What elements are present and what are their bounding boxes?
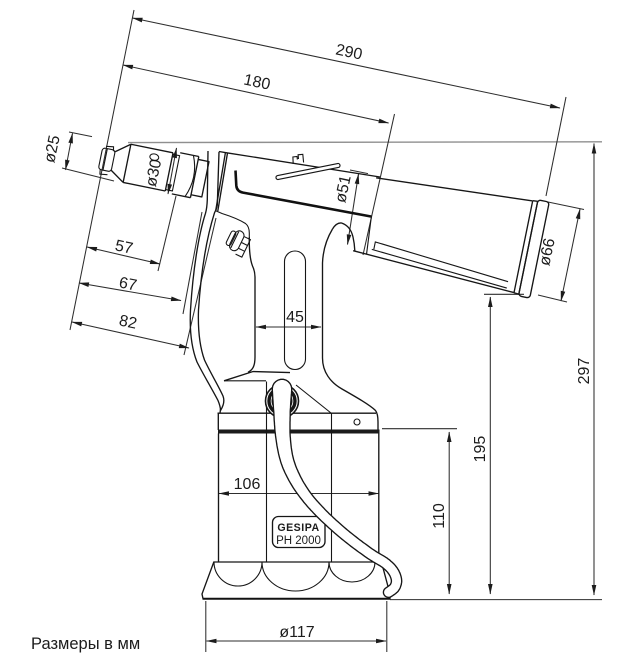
- svg-text:195: 195: [472, 436, 489, 463]
- svg-text:57: 57: [113, 237, 134, 257]
- svg-text:297: 297: [576, 358, 593, 385]
- svg-text:106: 106: [234, 476, 261, 493]
- svg-text:GESIPA: GESIPA: [277, 522, 319, 534]
- svg-text:ø117: ø117: [279, 624, 314, 641]
- svg-text:PH 2000: PH 2000: [276, 535, 321, 547]
- svg-text:Размеры в мм: Размеры в мм: [31, 635, 140, 653]
- svg-text:110: 110: [431, 503, 448, 529]
- svg-text:67: 67: [118, 275, 139, 295]
- svg-text:82: 82: [117, 312, 138, 332]
- svg-text:45: 45: [286, 309, 304, 326]
